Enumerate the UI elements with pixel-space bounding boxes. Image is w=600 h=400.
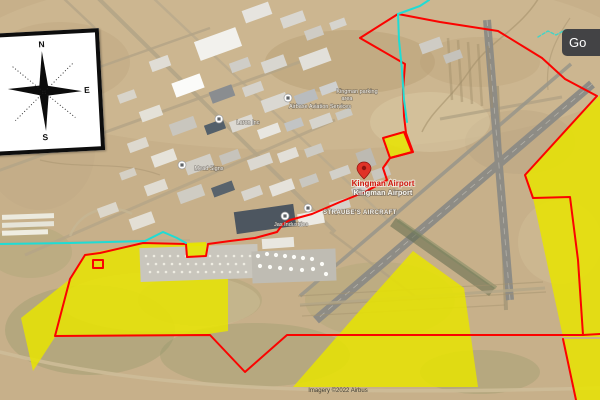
parked-aircraft xyxy=(209,255,212,258)
zone-highlight-ramp-small-parcel xyxy=(186,242,207,257)
parked-aircraft xyxy=(169,255,172,258)
map-label: Airbase Aviation Services xyxy=(289,104,351,110)
parked-aircraft xyxy=(237,271,240,274)
parked-aircraft xyxy=(213,271,216,274)
parked-aircraft xyxy=(195,263,198,266)
parked-aircraft xyxy=(225,255,228,258)
parked-aircraft xyxy=(155,263,158,266)
map-label: STRAUBE'S AIRCRAFT xyxy=(323,210,397,216)
parked-aircraft xyxy=(203,263,206,266)
parked-aircraft xyxy=(149,271,152,274)
parked-aircraft xyxy=(163,263,166,266)
compass-east-label: E xyxy=(84,85,91,95)
parked-aircraft xyxy=(289,267,293,271)
map-label: Laron Inc xyxy=(237,120,260,126)
parked-aircraft xyxy=(227,263,230,266)
parked-aircraft xyxy=(320,262,324,266)
parked-aircraft xyxy=(189,271,192,274)
map-label: Kingman Airport xyxy=(354,188,413,197)
google-watermark-text: Go xyxy=(569,35,586,50)
map-label: Kingman parking xyxy=(336,89,377,95)
map-label: area xyxy=(341,96,353,102)
compass-north-label: N xyxy=(38,39,45,49)
parked-aircraft xyxy=(310,257,314,261)
parked-aircraft xyxy=(179,263,182,266)
parked-aircraft xyxy=(283,254,287,258)
parked-aircraft xyxy=(265,252,269,256)
parked-aircraft xyxy=(187,263,190,266)
terrain-patch xyxy=(265,30,435,94)
parked-aircraft xyxy=(145,255,148,258)
poi-pin-icon xyxy=(178,161,186,169)
parked-aircraft xyxy=(197,271,200,274)
parked-aircraft xyxy=(147,263,150,266)
parked-aircraft xyxy=(233,255,236,258)
parked-aircraft xyxy=(278,266,282,270)
parked-aircraft xyxy=(258,264,262,268)
poi-pin-icon xyxy=(215,115,223,123)
parked-aircraft xyxy=(153,255,156,258)
parked-aircraft xyxy=(241,255,244,258)
map-label: Imagery ©2022 Airbus xyxy=(308,387,367,394)
parked-aircraft xyxy=(229,271,232,274)
parked-aircraft xyxy=(205,271,208,274)
parked-aircraft xyxy=(324,272,328,276)
parked-aircraft xyxy=(311,267,315,271)
google-watermark: Go xyxy=(562,29,600,56)
compass-rose: N E S xyxy=(0,28,105,156)
parked-aircraft xyxy=(165,271,168,274)
compass-south-label: S xyxy=(42,132,49,142)
poi-pin-icon xyxy=(281,212,289,220)
poi-pin-icon xyxy=(284,94,292,102)
parked-aircraft xyxy=(211,263,214,266)
aircraft-ramp xyxy=(251,249,336,284)
parked-aircraft xyxy=(301,256,305,260)
parked-aircraft xyxy=(219,263,222,266)
parked-aircraft xyxy=(249,255,252,258)
parked-aircraft xyxy=(171,263,174,266)
parked-aircraft xyxy=(243,263,246,266)
parked-aircraft xyxy=(256,254,260,258)
map-label: Mead Signs xyxy=(194,166,223,172)
parked-aircraft xyxy=(177,255,180,258)
parked-aircraft xyxy=(161,255,164,258)
map-label: Jas Industries xyxy=(274,222,308,228)
parked-aircraft xyxy=(245,271,248,274)
parked-aircraft xyxy=(292,255,296,259)
parked-aircraft xyxy=(235,263,238,266)
poi-pin-icon xyxy=(304,204,312,212)
parked-aircraft xyxy=(217,255,220,258)
map-label: Kingman Airport xyxy=(352,179,415,188)
parked-aircraft xyxy=(173,271,176,274)
parked-aircraft xyxy=(157,271,160,274)
parked-aircraft xyxy=(274,253,278,257)
parked-aircraft xyxy=(181,271,184,274)
parked-aircraft xyxy=(221,271,224,274)
map-canvas[interactable]: Kingman AirportKingman AirportSTRAUBE'S … xyxy=(0,0,600,400)
parked-aircraft xyxy=(268,265,272,269)
parked-aircraft xyxy=(300,268,304,272)
